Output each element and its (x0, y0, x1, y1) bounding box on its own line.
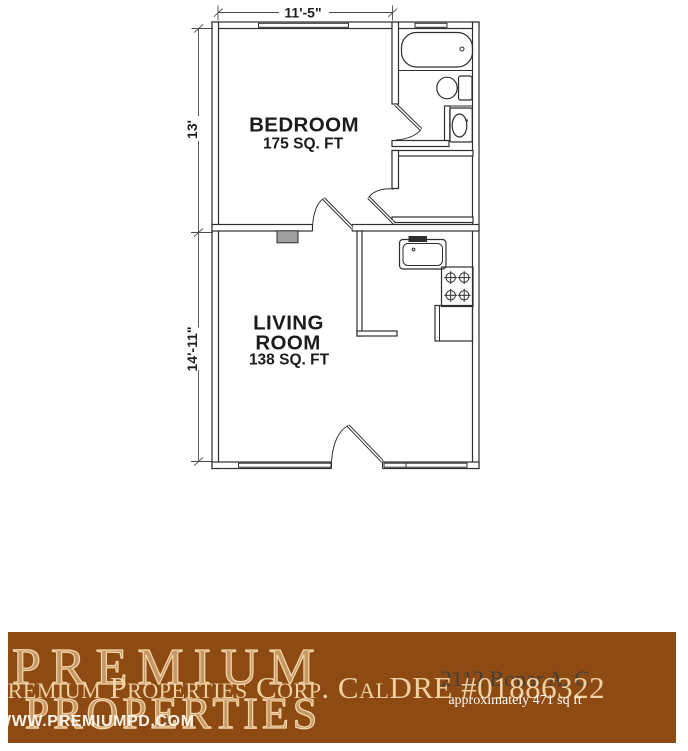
vanity-sink-icon (452, 114, 467, 137)
hall-door-arc (369, 189, 395, 198)
bathroom (399, 33, 473, 143)
toilet-icon (437, 77, 457, 99)
bedroom-label: BEDROOM (249, 114, 359, 137)
living-area-label: 138 SQ. FT (249, 352, 330, 369)
toilet-tank-icon (459, 76, 473, 100)
bathroom-door-arc (396, 130, 421, 141)
doors (313, 105, 422, 470)
floor-plan-page: { "floor_plan": { "dim_width_top": "11'-… (0, 0, 688, 751)
refrigerator-counter-icon (435, 306, 473, 342)
dimension-top-width: 11'-5" (284, 5, 321, 21)
living-window-right (384, 463, 467, 467)
wall-heater-icon (277, 231, 298, 243)
bedroom-area-label: 175 SQ. FT (263, 136, 344, 153)
vanity-faucet-icon (466, 119, 468, 121)
tub-drain-icon (460, 47, 464, 51)
bathroom-window (415, 23, 447, 27)
dimension-bedroom-height: 13' (184, 120, 200, 139)
bedroom-door-arc (313, 199, 324, 228)
bedroom-window (259, 23, 349, 27)
stove-icon (442, 267, 474, 307)
windows (239, 23, 468, 467)
approximate-area: approximately 471 sq ft (420, 694, 610, 708)
room-labels: BEDROOM 175 SQ. FT LIVING ROOM 138 SQ. F… (249, 114, 359, 369)
bathtub-icon (402, 33, 473, 68)
walls (212, 22, 479, 469)
stove-burners-icon (444, 271, 471, 302)
front-door-arc (332, 426, 349, 462)
brand-banner: PREMIUM PROPERTIES 2112 Bonar A, C Premi… (8, 632, 676, 743)
website-url: WWW.PREMIUMPD.COM (8, 714, 195, 730)
dimension-living-height: 14'-11" (184, 326, 200, 371)
floor-plan: 11'-5" 13' 14'-11" BEDROOM 175 SQ. FT LI… (0, 0, 688, 632)
living-window-left (239, 463, 332, 467)
